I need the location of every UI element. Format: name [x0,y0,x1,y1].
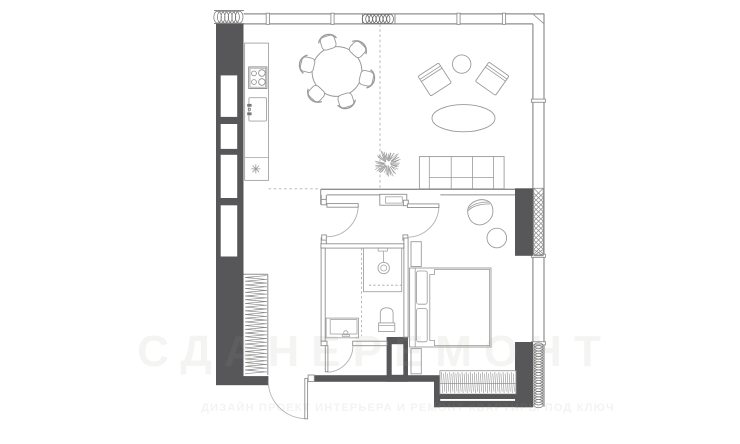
svg-text:СДАНЕРЕМОНТ: СДАНЕРЕМОНТ [137,327,613,376]
svg-text:ДИЗАЙН ПРОЕКТ ИНТЕРЬЕРА И РЕМО: ДИЗАЙН ПРОЕКТ ИНТЕРЬЕРА И РЕМОНТ КВАРТИР… [201,401,615,414]
